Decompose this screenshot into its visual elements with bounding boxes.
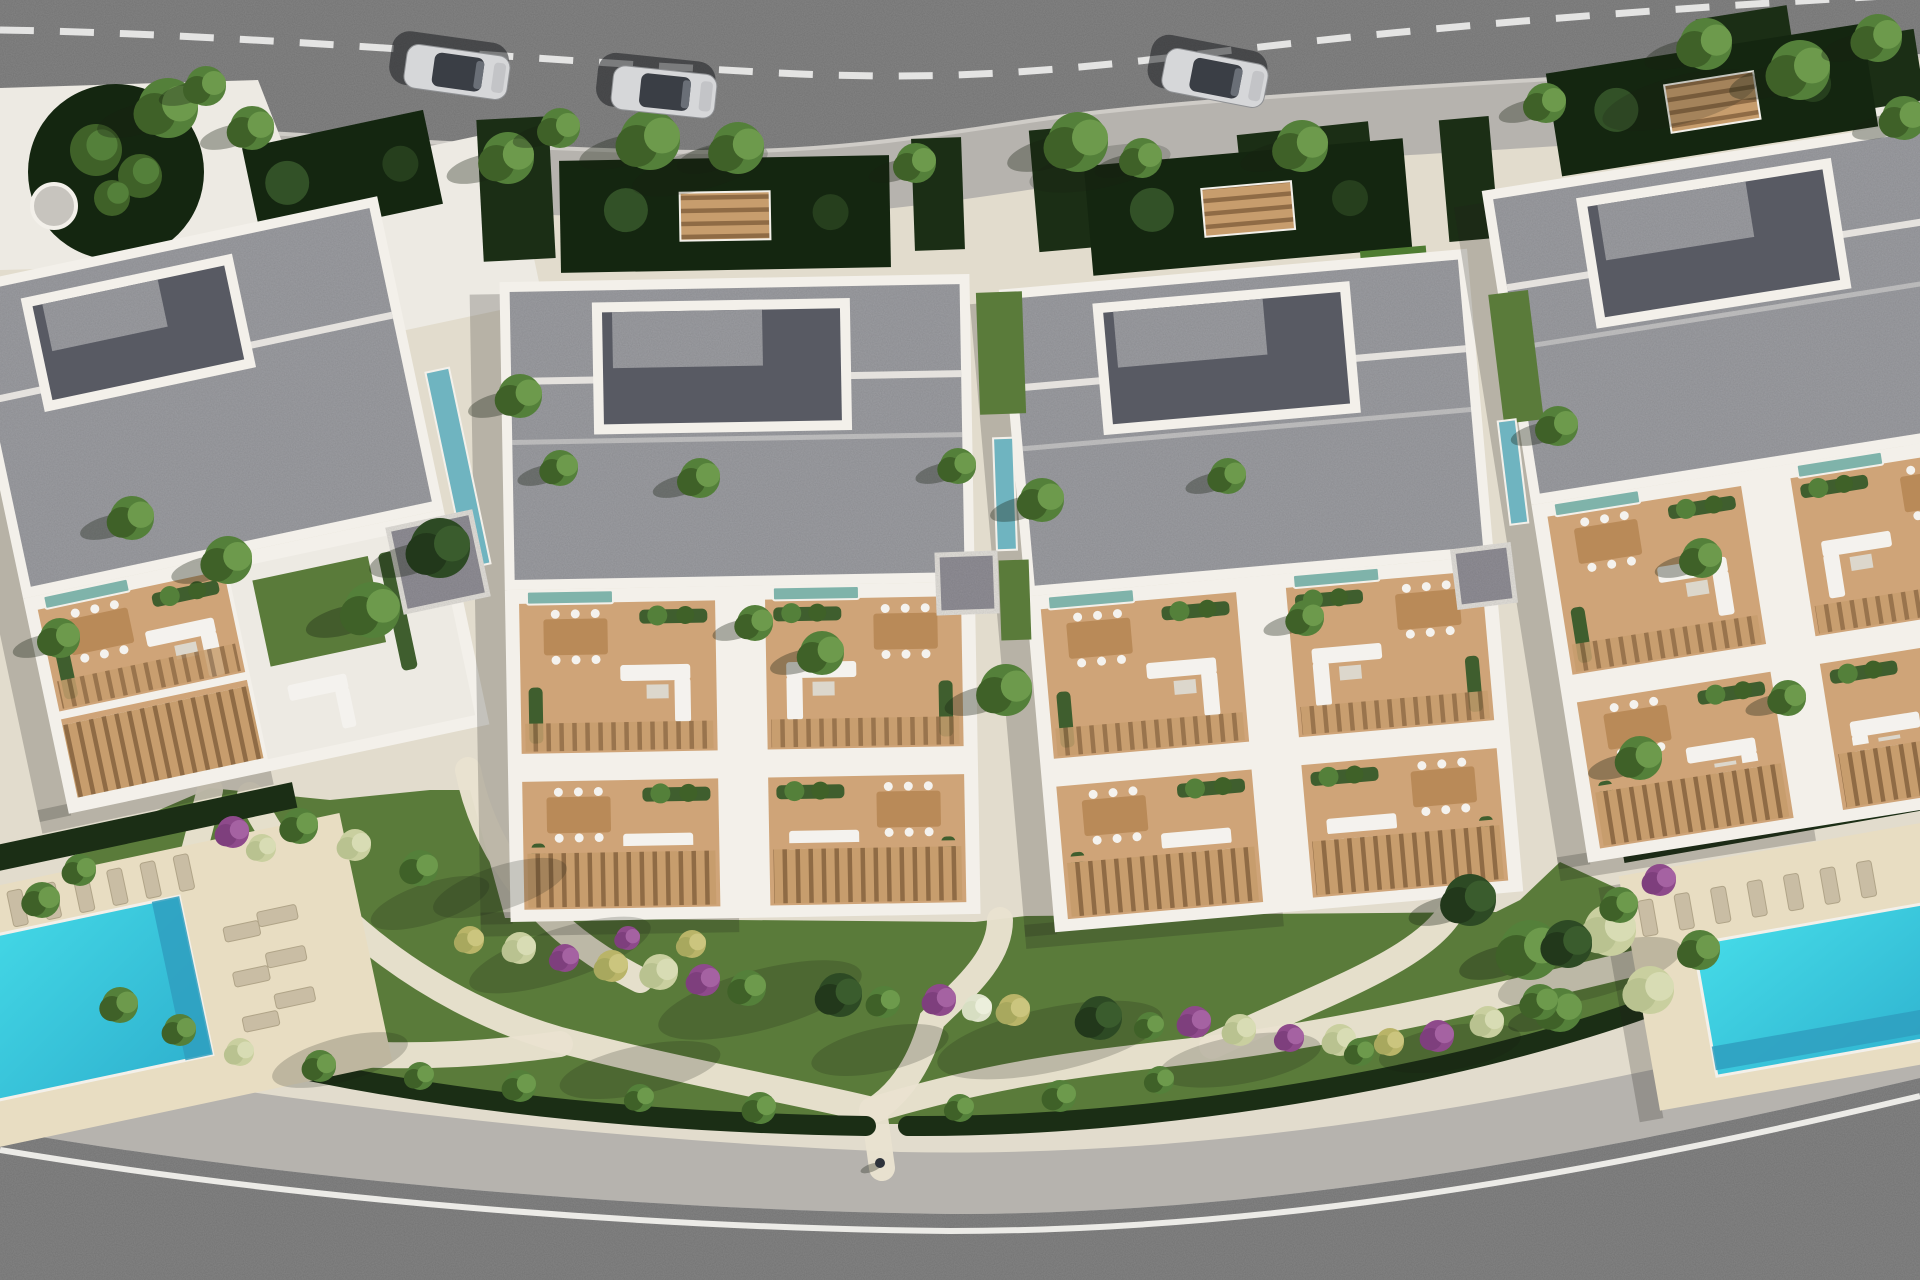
- scene-svg: [0, 0, 1920, 1280]
- aerial-site-render: [0, 0, 1920, 1280]
- building-2: [469, 274, 980, 937]
- building-3: [969, 249, 1525, 949]
